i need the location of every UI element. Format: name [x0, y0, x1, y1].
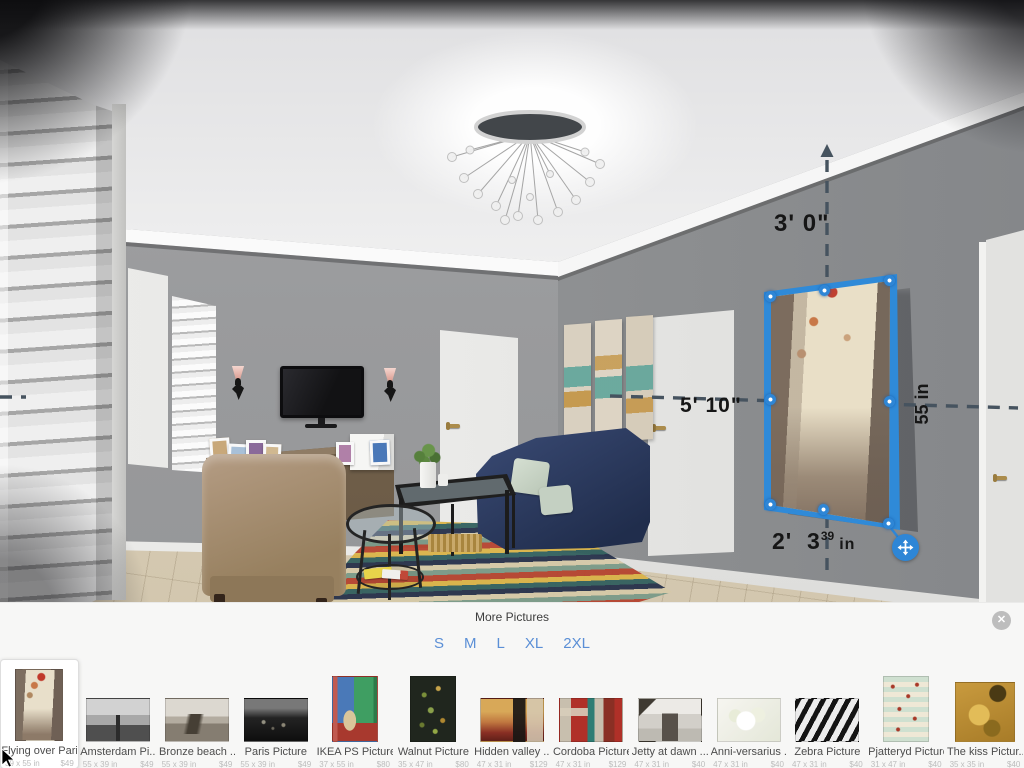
photo-frame[interactable] [370, 440, 391, 466]
selection-handle-middle-right[interactable] [884, 396, 895, 407]
picture-item-price: $80 [377, 760, 390, 768]
wall-art-panel-2[interactable] [595, 319, 622, 439]
picture-item-name: Pjatteryd Picture [868, 746, 944, 758]
picture-thumbnail[interactable] [638, 698, 702, 742]
sofa-pillow [539, 484, 574, 515]
inches-value: 3 [807, 528, 821, 554]
picture-item[interactable]: Paris Picture 55 x 39 in$49 [236, 659, 315, 768]
picture-thumbnail[interactable] [86, 698, 150, 742]
picture-item-dimensions: 47 x 31 in [713, 760, 748, 768]
picture-item-dimensions: 47 x 31 in [634, 760, 669, 768]
wall-art-panel-3[interactable] [626, 315, 653, 441]
armchair[interactable] [202, 454, 346, 596]
picture-item-dimensions: 31 x 47 in [871, 760, 906, 768]
door-handle-left [447, 424, 460, 428]
picture-item-name: Paris Picture [245, 746, 307, 758]
picture-thumbnail[interactable] [955, 682, 1015, 742]
white-cup [438, 474, 448, 486]
picture-item[interactable]: Cordoba Picture 47 x 31 in$129 [552, 659, 631, 768]
selection-handle-bottom-middle[interactable] [818, 504, 829, 515]
size-option-2xl[interactable]: 2XL [563, 635, 590, 652]
picture-item-price: $129 [530, 760, 548, 768]
picture-thumbnail[interactable] [410, 676, 456, 742]
selection-handle-bottom-left[interactable] [765, 499, 776, 510]
selection-handle-bottom-right[interactable] [883, 518, 894, 529]
picture-item-dimensions: 47 x 31 in [556, 760, 591, 768]
picture-item[interactable]: Jetty at dawn ... 47 x 31 in$40 [630, 659, 709, 768]
picture-item-name: Cordoba Picture [553, 746, 629, 758]
picture-item-name: The kiss Pictur... [947, 746, 1023, 758]
picture-item-price: $49 [60, 759, 73, 768]
mouse-cursor [0, 748, 16, 768]
picture-item-price: $49 [298, 760, 311, 768]
picture-item-name: Bronze beach ... [159, 746, 235, 758]
tv-base [305, 424, 337, 428]
selection-handle-top-left[interactable] [765, 291, 776, 302]
wall-tv[interactable] [280, 366, 364, 418]
picture-item-dimensions: 47 x 31 in [792, 760, 827, 768]
move-arrows-icon [896, 538, 915, 557]
picture-thumbnail-strip: Flying over Pari... 39 x 55 in$49 Amster… [0, 659, 1024, 768]
door-handle-middle [653, 426, 666, 430]
size-option-xl[interactable]: XL [525, 635, 543, 652]
fraction-value: 39 [821, 529, 834, 543]
measurement-label-top: 3' 0" [774, 210, 829, 238]
sputnik-ceiling-light[interactable] [430, 82, 630, 232]
picture-item-dimensions: 55 x 39 in [162, 760, 197, 768]
picture-item-dimensions: 35 x 47 in [398, 760, 433, 768]
picture-item-dimensions: 37 x 55 in [319, 760, 354, 768]
picture-item-name: Amsterdam Pi... [80, 746, 156, 758]
coffee-table-leg [505, 490, 509, 554]
size-option-s[interactable]: S [434, 635, 444, 652]
picture-item[interactable]: Bronze beach ... 55 x 39 in$49 [158, 659, 237, 768]
door-handle-right [994, 476, 1007, 480]
louvered-shutter-door-left[interactable] [0, 55, 114, 655]
picture-item-price: $40 [771, 760, 784, 768]
panel-title: More Pictures [0, 603, 1024, 624]
picture-item-price: $49 [140, 760, 153, 768]
picture-item[interactable]: Zebra Picture 47 x 31 in$40 [788, 659, 867, 768]
door-frame [112, 104, 126, 600]
wall-art-panel-1[interactable] [564, 323, 591, 437]
picture-item[interactable]: Pjatteryd Picture 31 x 47 in$40 [867, 659, 946, 768]
picture-item-name: Jetty at dawn ... [632, 746, 708, 758]
picture-item[interactable]: Anni-versarius ... 47 x 31 in$40 [709, 659, 788, 768]
picture-item-dimensions: 55 x 39 in [240, 760, 275, 768]
measurement-label-height: 55 in [912, 374, 932, 434]
picture-item[interactable]: IKEA PS Picture 37 x 55 in$80 [315, 659, 394, 768]
sconce-bracket [384, 385, 396, 402]
picture-item-price: $40 [692, 760, 705, 768]
picture-thumbnail[interactable] [883, 676, 929, 742]
size-options: S M L XL 2XL [0, 635, 1024, 652]
picture-item-name: IKEA PS Picture [317, 746, 393, 758]
picture-item[interactable]: The kiss Pictur... 35 x 35 in$40 [946, 659, 1024, 768]
measurement-label-bottom: 2' 339in [772, 528, 855, 555]
picture-item-name: Zebra Picture [794, 746, 860, 758]
app-window: 3' 0" 5' 10" 55 in 2' 339in More Picture… [0, 0, 1024, 768]
picture-item-price: $40 [928, 760, 941, 768]
selection-handle-middle-left[interactable] [765, 394, 776, 405]
size-option-l[interactable]: L [497, 635, 505, 652]
picture-item-name: Hidden valley ... [474, 746, 550, 758]
picture-item-dimensions: 47 x 31 in [477, 760, 512, 768]
picture-item-price: $40 [1007, 760, 1020, 768]
coffee-table-leg [512, 494, 515, 548]
round-side-table[interactable] [346, 504, 436, 544]
picture-thumbnail[interactable] [165, 698, 229, 742]
close-icon[interactable]: ✕ [992, 611, 1011, 630]
tv-screen [283, 369, 361, 415]
measurement-label-left: 5' 10" [680, 394, 742, 418]
wall-sconce-left[interactable] [228, 366, 248, 402]
picture-item-price: $129 [609, 760, 627, 768]
picture-item-dimensions: 55 x 39 in [83, 760, 118, 768]
plant-pot [420, 462, 436, 488]
picture-thumbnail[interactable] [717, 698, 781, 742]
move-handle[interactable] [892, 534, 919, 561]
picture-thumbnail[interactable] [480, 698, 544, 742]
picture-thumbnail[interactable] [244, 698, 308, 742]
woven-basket[interactable] [428, 534, 482, 552]
picture-item-price: $40 [849, 760, 862, 768]
picture-item-dimensions: 35 x 35 in [950, 760, 985, 768]
picture-item-price: $49 [219, 760, 232, 768]
picture-thumbnail[interactable] [15, 669, 63, 741]
selection-handle-top-right[interactable] [884, 275, 895, 286]
selection-handle-top-middle[interactable] [819, 285, 830, 296]
picture-item-price: $80 [455, 760, 468, 768]
picture-thumbnail[interactable] [559, 698, 623, 742]
size-option-m[interactable]: M [464, 635, 477, 652]
sconce-bracket [232, 383, 244, 400]
door-frame-right [979, 242, 987, 612]
picture-thumbnail[interactable] [332, 676, 378, 742]
unit-value: in [839, 536, 855, 553]
magazine [382, 569, 409, 580]
picture-item[interactable]: Hidden valley ... 47 x 31 in$129 [473, 659, 552, 768]
wall-sconce-right[interactable] [380, 368, 400, 404]
picture-thumbnail[interactable] [795, 698, 859, 742]
feet-value: 2' [772, 528, 792, 554]
picture-item-name: Walnut Picture [398, 746, 469, 758]
more-pictures-panel: More Pictures ✕ S M L XL 2XL Flying over… [0, 602, 1024, 768]
picture-item[interactable]: Walnut Picture 35 x 47 in$80 [394, 659, 473, 768]
picture-item[interactable]: Amsterdam Pi... 55 x 39 in$49 [79, 659, 158, 768]
picture-item-name: Anni-versarius ... [711, 746, 787, 758]
